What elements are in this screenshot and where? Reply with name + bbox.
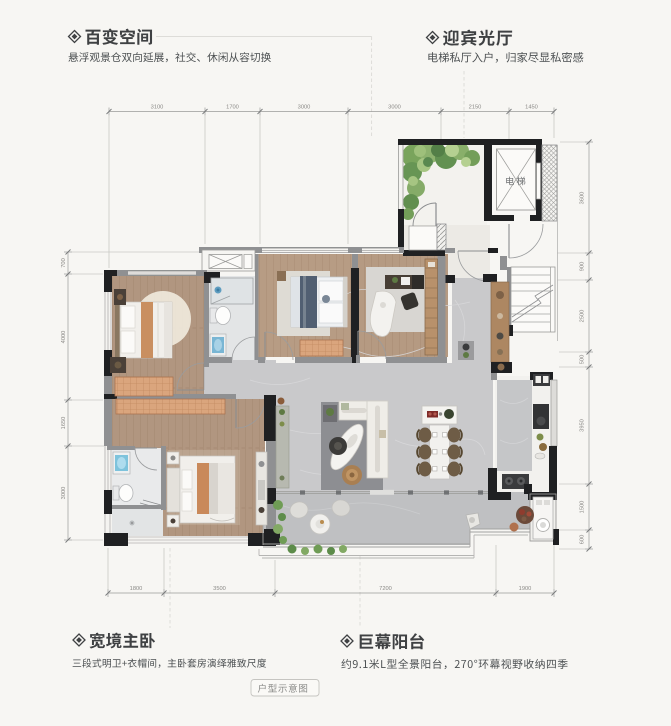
svg-text:4000: 4000	[61, 331, 67, 344]
svg-text:1700: 1700	[226, 105, 239, 111]
svg-text:2150: 2150	[469, 105, 482, 111]
svg-text:1900: 1900	[519, 586, 532, 592]
svg-text:3000: 3000	[61, 487, 67, 500]
svg-text:500: 500	[580, 355, 586, 365]
svg-text:3000: 3000	[388, 105, 401, 111]
svg-text:3500: 3500	[213, 586, 226, 592]
svg-text:900: 900	[580, 262, 586, 272]
svg-text:600: 600	[580, 535, 586, 545]
svg-text:3600: 3600	[580, 192, 586, 205]
svg-text:7200: 7200	[379, 586, 392, 592]
svg-text:1500: 1500	[580, 501, 586, 514]
svg-text:1800: 1800	[130, 586, 143, 592]
svg-text:700: 700	[61, 258, 67, 268]
svg-text:1650: 1650	[61, 417, 67, 430]
svg-text:3000: 3000	[298, 105, 311, 111]
svg-text:3100: 3100	[151, 105, 164, 111]
svg-text:2500: 2500	[580, 310, 586, 323]
svg-text:1450: 1450	[525, 105, 538, 111]
svg-text:3950: 3950	[580, 419, 586, 432]
